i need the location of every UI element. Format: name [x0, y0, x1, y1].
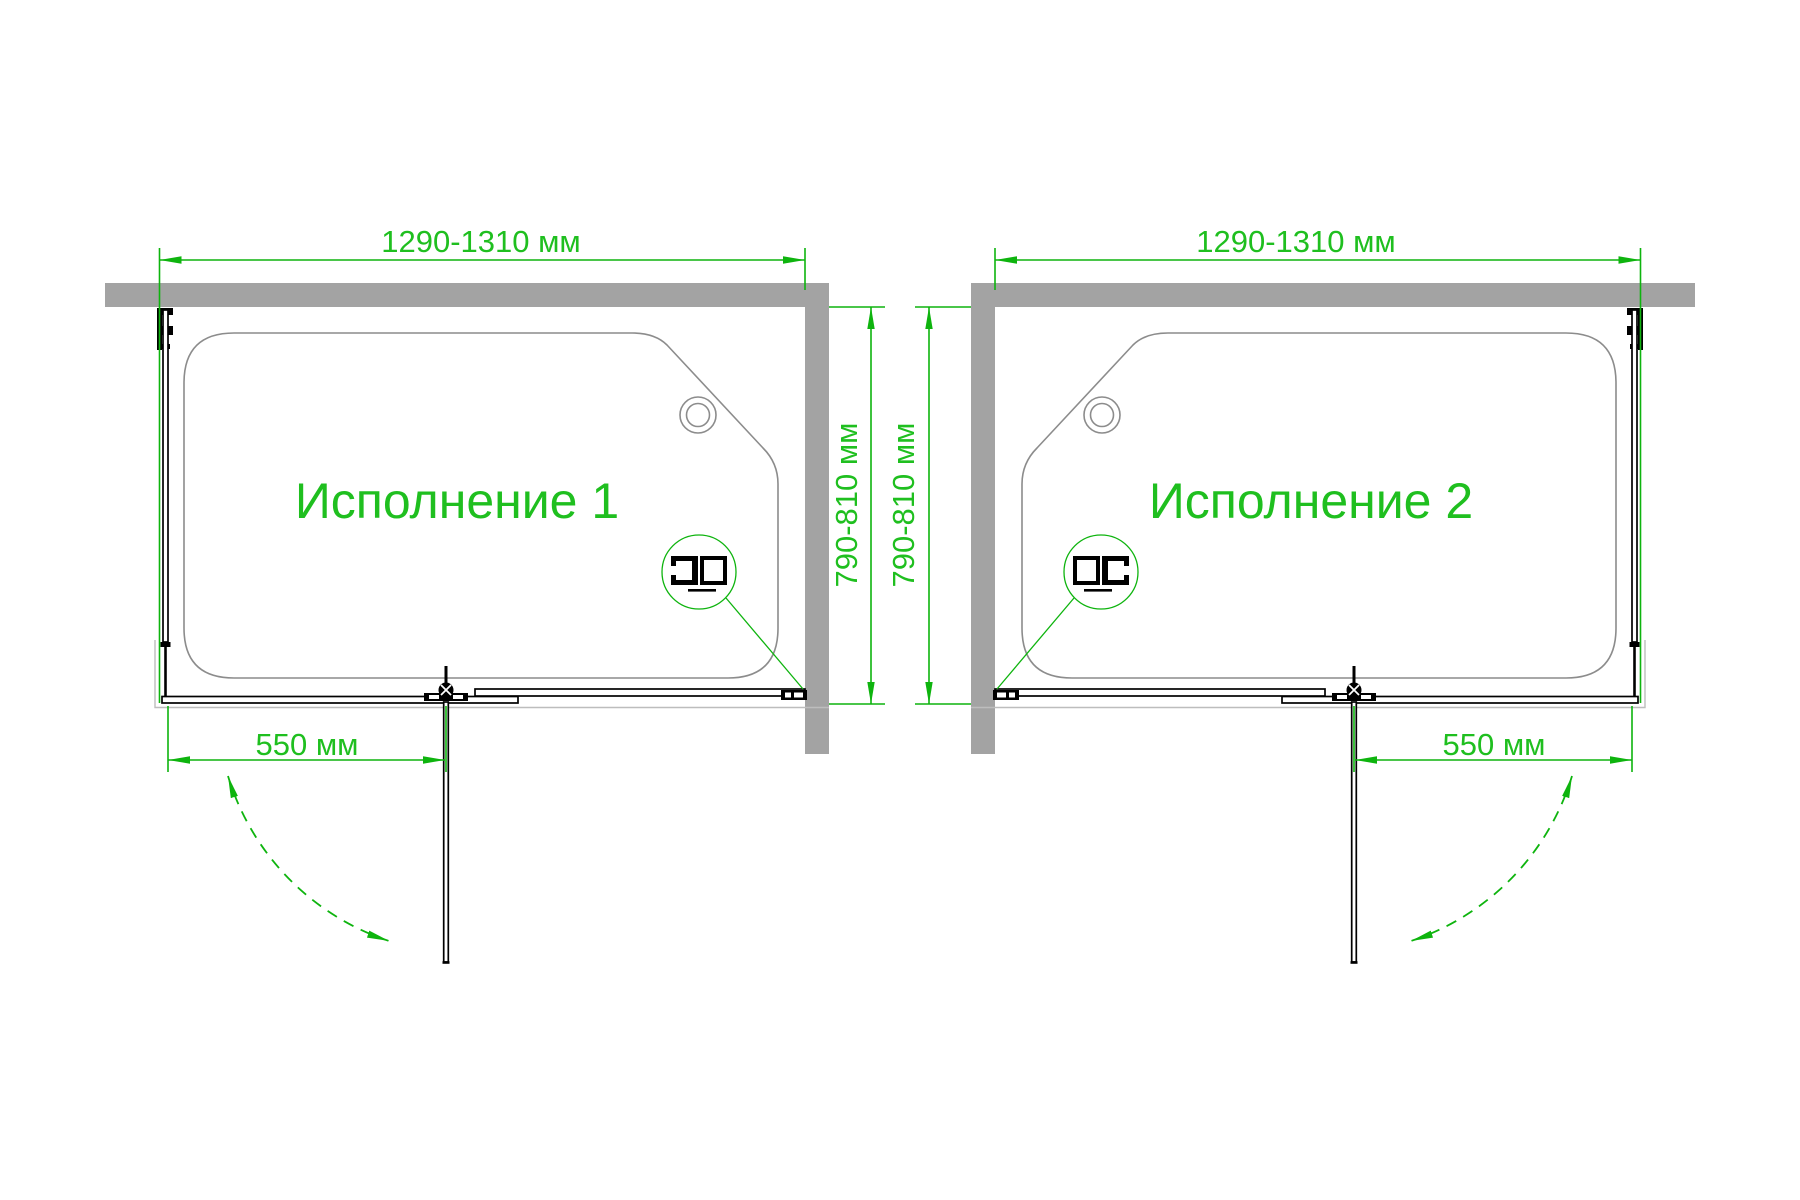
- diagram-2-geometry: [915, 248, 1695, 963]
- diagram-1-geometry: [105, 248, 885, 963]
- door-dimension-label: 550 мм: [256, 727, 359, 762]
- door-dimension-label: 550 мм: [1443, 727, 1546, 762]
- drawing-page: 1290-1310 мм 790-810 мм 550 мм Исполнени…: [0, 0, 1800, 1200]
- depth-dimension-label: 790-810 мм: [829, 422, 864, 587]
- variant-title: Исполнение 2: [1149, 473, 1473, 529]
- depth-dimension-label: 790-810 мм: [886, 422, 921, 587]
- width-dimension-label: 1290-1310 мм: [1196, 224, 1396, 259]
- drawing-canvas: 1290-1310 мм 790-810 мм 550 мм Исполнени…: [0, 0, 1800, 1200]
- variant-title: Исполнение 1: [295, 473, 619, 529]
- width-dimension-label: 1290-1310 мм: [381, 224, 581, 259]
